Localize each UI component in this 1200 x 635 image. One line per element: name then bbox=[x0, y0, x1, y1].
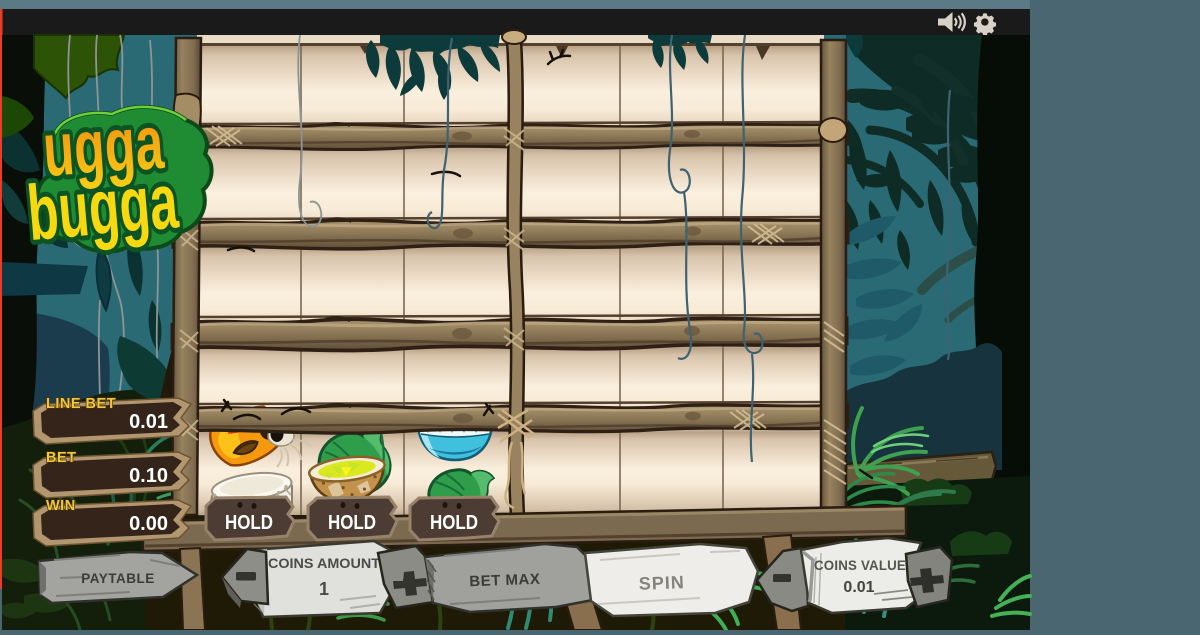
svg-text:BET MAX: BET MAX bbox=[469, 571, 541, 590]
svg-text:BET: BET bbox=[46, 450, 77, 466]
svg-text:WIN: WIN bbox=[46, 498, 76, 514]
svg-text:0.01: 0.01 bbox=[843, 579, 874, 596]
svg-text:HOLD: HOLD bbox=[225, 512, 273, 534]
svg-text:0.01: 0.01 bbox=[129, 411, 168, 433]
svg-text:COINS AMOUNT: COINS AMOUNT bbox=[268, 555, 380, 571]
svg-text:SPIN: SPIN bbox=[638, 572, 685, 594]
svg-text:HOLD: HOLD bbox=[430, 512, 478, 534]
svg-text:1: 1 bbox=[319, 579, 329, 599]
svg-text:LINE BET: LINE BET bbox=[46, 396, 116, 412]
svg-text:0.00: 0.00 bbox=[129, 513, 168, 535]
svg-text:COINS VALUE: COINS VALUE bbox=[814, 557, 906, 573]
svg-text:PAYTABLE: PAYTABLE bbox=[81, 571, 155, 586]
svg-text:bugga: bugga bbox=[24, 156, 181, 257]
svg-text:HOLD: HOLD bbox=[328, 512, 376, 534]
svg-text:0.10: 0.10 bbox=[129, 465, 168, 487]
